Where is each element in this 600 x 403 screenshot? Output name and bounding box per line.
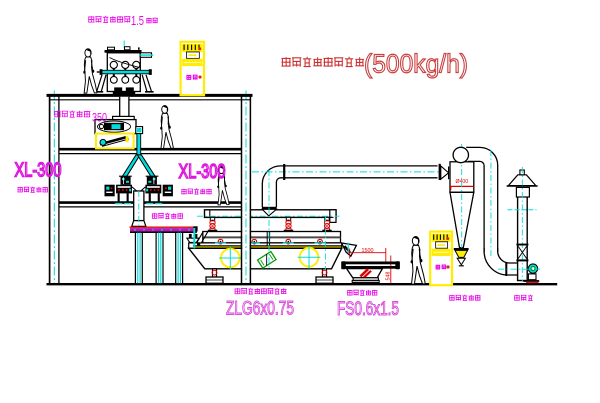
svg-text:1.5: 1.5 bbox=[131, 13, 144, 28]
svg-text:1500: 1500 bbox=[362, 248, 374, 254]
svg-text:FS0.6x1.5: FS0.6x1.5 bbox=[337, 299, 399, 320]
svg-text:548: 548 bbox=[385, 272, 391, 281]
svg-text:ZLG6x0.75: ZLG6x0.75 bbox=[226, 299, 294, 320]
svg-text:XL-300: XL-300 bbox=[179, 161, 226, 183]
svg-text:XL-300: XL-300 bbox=[15, 160, 62, 182]
svg-text:(500kg/h): (500kg/h) bbox=[364, 49, 468, 79]
svg-text:350: 350 bbox=[92, 111, 107, 125]
